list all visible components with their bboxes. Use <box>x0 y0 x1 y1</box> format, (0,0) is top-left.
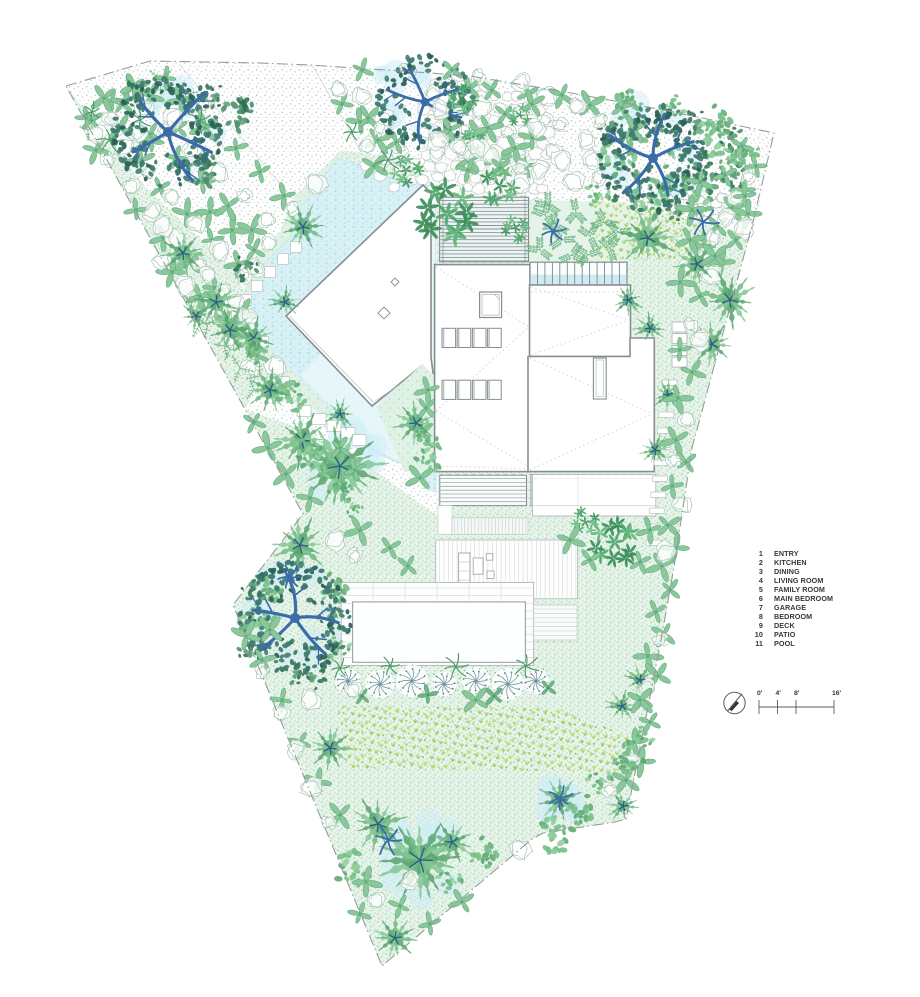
svg-text:LIVING ROOM: LIVING ROOM <box>774 576 823 585</box>
svg-text:8: 8 <box>759 612 763 621</box>
svg-text:11: 11 <box>755 639 763 648</box>
svg-text:FAMILY ROOM: FAMILY ROOM <box>774 585 825 594</box>
svg-text:KITCHEN: KITCHEN <box>774 558 807 567</box>
svg-text:9: 9 <box>759 621 763 630</box>
svg-text:ENTRY: ENTRY <box>774 549 799 558</box>
svg-text:PATIO: PATIO <box>774 630 796 639</box>
svg-text:DINING: DINING <box>774 567 800 576</box>
svg-text:16': 16' <box>832 690 842 697</box>
svg-text:1: 1 <box>759 549 763 558</box>
svg-text:0': 0' <box>757 690 763 697</box>
svg-text:BEDROOM: BEDROOM <box>774 612 812 621</box>
svg-text:MAIN BEDROOM: MAIN BEDROOM <box>774 594 833 603</box>
svg-text:DECK: DECK <box>774 621 795 630</box>
svg-text:6: 6 <box>759 594 763 603</box>
svg-text:4': 4' <box>776 690 782 697</box>
svg-text:POOL: POOL <box>774 639 795 648</box>
svg-text:10: 10 <box>755 630 763 639</box>
svg-text:5: 5 <box>759 585 763 594</box>
svg-text:4: 4 <box>759 576 763 585</box>
svg-text:3: 3 <box>759 567 763 576</box>
svg-text:7: 7 <box>759 603 763 612</box>
svg-text:GARAGE: GARAGE <box>774 603 806 612</box>
svg-text:8': 8' <box>794 690 800 697</box>
svg-text:2: 2 <box>759 558 763 567</box>
